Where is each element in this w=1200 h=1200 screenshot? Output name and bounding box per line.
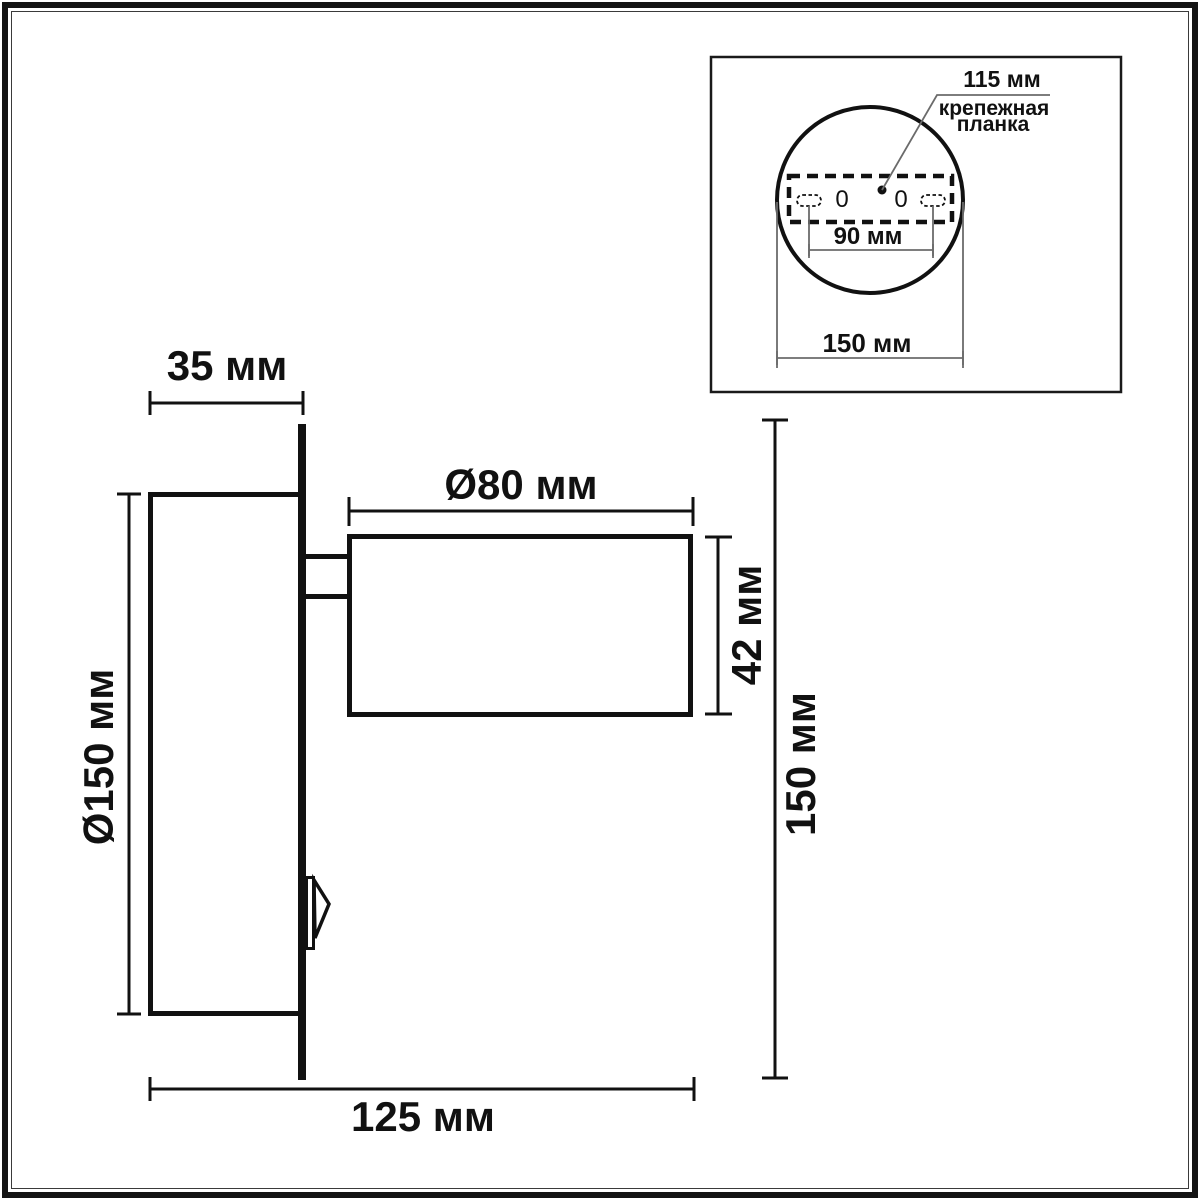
screw-hole-left-mark: 0 bbox=[822, 188, 862, 212]
bracket-arm-top bbox=[303, 554, 349, 559]
dim-label-plate-length: 115 мм bbox=[902, 66, 1102, 92]
dim-label-base-diameter: 150 мм bbox=[767, 329, 967, 357]
dim-label-total-width: 125 мм bbox=[273, 1092, 573, 1142]
switch-lever bbox=[314, 880, 329, 938]
dim-label-head-diameter: Ø80 мм bbox=[371, 460, 671, 510]
slot-hole-left bbox=[797, 195, 821, 206]
dim-label-backplate-depth: 35 мм bbox=[77, 341, 377, 391]
slot-hole-right bbox=[921, 195, 945, 206]
dim-label-head-height: 42 мм bbox=[722, 465, 772, 785]
dim-label-hole-spacing: 90 мм bbox=[768, 224, 968, 250]
dim-label-total-height: 150 мм bbox=[776, 604, 826, 924]
label-mounting-plate-line2: планка bbox=[883, 114, 1103, 136]
backplate-outline bbox=[151, 495, 301, 1014]
technical-drawing-page: 35 мм Ø150 мм Ø80 мм 42 мм 150 мм 125 мм… bbox=[0, 0, 1200, 1200]
bracket-arm-bottom bbox=[303, 594, 349, 599]
dim-label-backplate-diameter: Ø150 мм bbox=[74, 597, 124, 917]
spot-head-outline bbox=[350, 537, 691, 715]
dim-35mm-lines bbox=[150, 391, 303, 415]
screw-hole-right-mark: 0 bbox=[881, 188, 921, 212]
drawing-linework bbox=[0, 0, 1200, 1200]
